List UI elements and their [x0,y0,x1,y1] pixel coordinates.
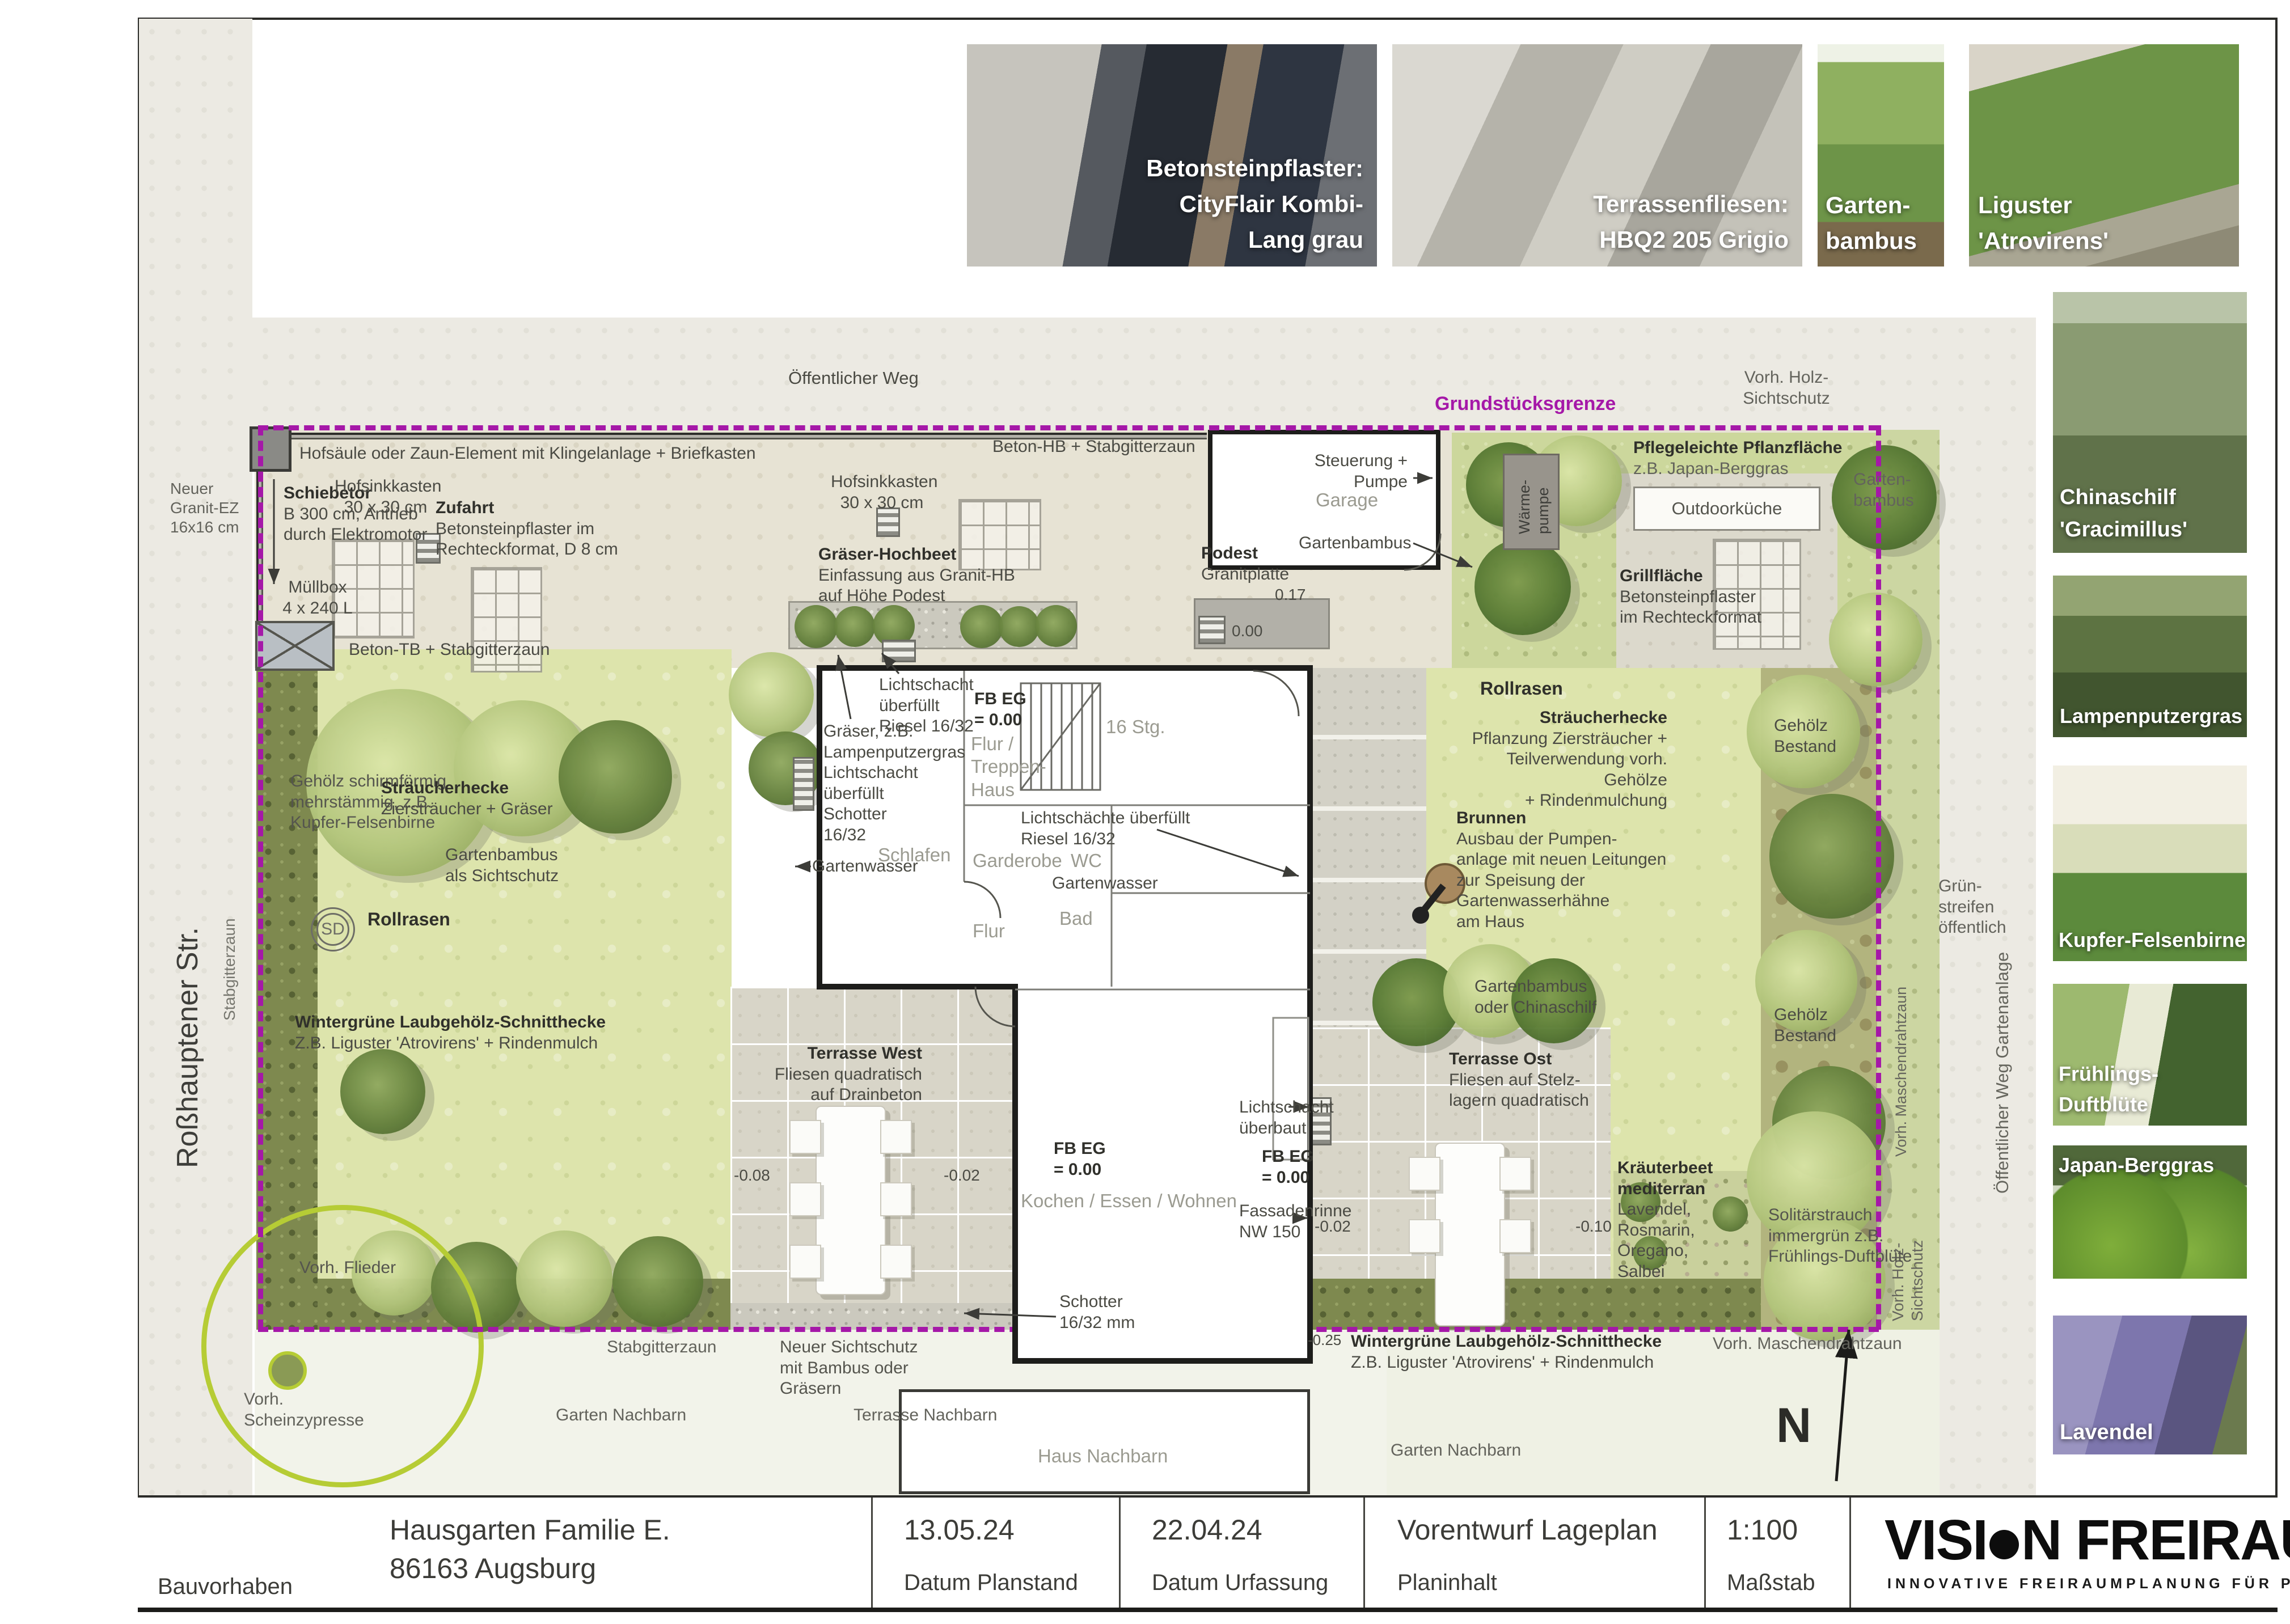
label-lichtschaechte: Lichtschächte überfüllt Riesel 16/32 [1021,808,1190,849]
photo-lavendel: Lavendel [2053,1316,2247,1454]
label-gartenwasser-ost: Gartenwasser [1052,873,1158,894]
photo-caption: Betonsteinpflaster: CityFlair Kombi- Lan… [1146,150,1363,257]
bauvorhaben-label: Bauvorhaben [158,1574,293,1600]
boundary-west [258,425,263,1330]
label-wintergruen-bottom: Wintergrüne Laubgehölz-SchnittheckeZ.B. … [1351,1331,1662,1373]
tree-symbol [612,1236,703,1327]
label-schlafen: Schlafen [878,844,950,866]
label-waermepumpe: Wärme- pumpe [1515,460,1553,534]
titleblock-divider [1849,1498,1851,1608]
terrace-chair [789,1120,821,1154]
titleblock-divider [1119,1498,1121,1608]
tree-symbol [340,1049,425,1134]
label-017: 0.17 [1275,585,1306,604]
label-gartenbambus-chinaschilf: Gartenbambus oder Chinaschilf [1474,976,1596,1018]
label-fbeg-stairs: FB EG = 0.00 [974,689,1026,730]
label-neuer-sichtschutz: Neuer Sichtschutz mit Bambus oder Gräser… [780,1337,918,1399]
label-gartenbambus-garage: Gartenbambus [1299,533,1410,554]
label-brunnen: BrunnenAusbau der Pumpen- anlage mit neu… [1456,808,1666,933]
herb-symbol [1713,1196,1748,1232]
compass-n: N [1776,1396,1811,1456]
terrace-chair [789,1245,821,1279]
label-beton-hb: Beton-HB + Stabgitterzaun [992,437,1195,458]
label-podest: PodestGranitplatte [1201,543,1289,585]
label-hecke-left: SträucherheckeZiersträucher + Gräser [381,778,553,819]
label-000: 0.00 [1232,621,1263,641]
planstand-label: Datum Planstand [904,1570,1078,1596]
photo-caption: Terrassenfliesen: HBQ2 205 Grigio [1593,186,1789,257]
lichtschacht-icon [882,640,916,662]
planinhalt-label: Planinhalt [1397,1570,1497,1596]
label-schotter-mm: Schotter 16/32 mm [1059,1292,1135,1333]
label-flur-treppenhaus: Flur / Treppen- Haus [971,733,1046,801]
label-hofsinkkasten-1: Hofsinkkasten 30 x 30 cm [335,476,437,518]
photo-caption: Liguster 'Atrovirens' [1978,187,2109,259]
label-graeser-hochbeet: Gräser-HochbeetEinfassung aus Granit-HB … [818,544,1015,607]
label-stabgitterzaun-left: Stabgitterzaun [220,783,239,1021]
terrace-chair [1499,1157,1531,1191]
label-grillflaeche: GrillflächeBetonsteinpflaster im Rechtec… [1620,566,1761,628]
gravel-strip-south [730,1303,1015,1330]
label-fbeg-west: FB EG = 0.00 [1054,1139,1106,1180]
terrace-chair [880,1182,912,1216]
label-gartenbambus-right: Garten- bambus [1853,470,1914,511]
photo-japan-berggras: Japan-Berggras [2053,1145,2247,1279]
logo-tagline: INNOVATIVE FREIRAUMPLANUNG FÜR PRIVAT & … [1887,1576,2290,1592]
terrace-chair [880,1120,912,1154]
label-stabgitterzaun-bottom: Stabgitterzaun [607,1337,716,1358]
photo-gartenbambus: Garten- bambus [1818,44,1944,267]
entry-steps-icon [1198,616,1226,644]
label-lichtschacht-ueberbaut: Lichtschacht überbaut [1239,1097,1334,1139]
lichtschacht-icon [793,757,814,811]
titleblock-divider [1704,1498,1706,1608]
label-gehoelz-bestand-1: Gehölz Bestand [1774,716,1836,757]
planinhalt-value: Vorentwurf Lageplan [1397,1513,1658,1546]
label-terrasse-nachbarn: Terrasse Nachbarn [854,1405,997,1426]
label-wintergruen-left: Wintergrüne Laubgehölz-SchnittheckeZ.B. … [295,1012,606,1054]
project-line2: 86163 Augsburg [390,1552,596,1585]
graeser-hochbeet-band [788,601,1078,649]
muellbox-icon [255,621,335,671]
photo-caption: Chinaschilf 'Gracimillus' [2060,481,2187,546]
photo-caption: Japan-Berggras [2059,1150,2214,1181]
label-rollrasen-left: Rollrasen [367,908,450,931]
boundary-east [1876,425,1881,1330]
label-solitaerstrauch: Solitärstrauch immergrün z.B. Frühlings-… [1768,1205,1912,1267]
label-beton-tb: Beton-TB + Stabgitterzaun [349,640,550,661]
label-garten-nachbarn-right: Garten Nachbarn [1391,1440,1521,1461]
massstab-value: 1:100 [1727,1513,1798,1546]
plant-symbol [960,605,1003,648]
tree-symbol [729,652,814,737]
hedge-south-east [1311,1279,1761,1330]
label-grundstuecksgrenze: Grundstücksgrenze [1435,392,1616,416]
label-16stg: 16 Stg. [1106,716,1165,738]
plant-symbol [795,605,838,648]
label-kochen-essen-wohnen: Kochen / Essen / Wohnen [1021,1190,1237,1212]
label-granit: Neuer Granit-EZ 16x16 cm [170,479,239,537]
urfassung-label: Datum Urfassung [1152,1570,1328,1596]
label-scheinzypresse: Vorh. Scheinzypresse [244,1389,364,1431]
photo-liguster: Liguster 'Atrovirens' [1969,44,2239,267]
label-gartenbambus-sicht: Gartenbambus als Sichtschutz [445,845,559,886]
label-fbeg-ost: FB EG = 0.00 [1262,1147,1314,1188]
plan-sheet: Betonsteinpflaster: CityFlair Kombi- Lan… [0,0,2290,1624]
title-block: Bauvorhaben Hausgarten Familie E. 86163 … [138,1495,2278,1612]
terrace-chair [789,1182,821,1216]
label-maschendraht-bottom: Vorh. Maschendrahtzaun [1713,1334,1902,1355]
urfassung-date: 22.04.24 [1152,1513,1262,1546]
label-hofsaeule: Hofsäule oder Zaun-Element mit Klingelan… [299,443,756,464]
photo-chinaschilf: Chinaschilf 'Gracimillus' [2053,292,2247,553]
photo-lampenputzergras: Lampenputzergras [2053,576,2247,737]
scheinzypresse-ring [201,1205,484,1487]
label-maschendraht-vert: Vorh. Maschendrahtzaun [1892,913,1911,1157]
plant-symbol [999,606,1040,647]
label-graeser-lampen: Gräser, z.B. Lampenputzergras [823,721,965,763]
label-hofsinkkasten-2: Hofsinkkasten 30 x 30 cm [831,472,933,513]
label-m008: -0.08 [734,1166,770,1185]
label-outdoorkueche: Outdoorküche [1633,498,1820,519]
label-lichtschacht-schotter: Lichtschacht überfüllt Schotter 16/32 [823,763,918,845]
massstab-label: Maßstab [1727,1570,1815,1596]
label-zufahrt: ZufahrtBetonsteinpflaster im Rechteckfor… [436,498,618,560]
titleblock-divider [1363,1498,1365,1608]
plant-symbol [834,606,875,647]
terrace-table [1435,1143,1505,1326]
scheinzypresse-trunk [268,1351,307,1390]
project-line1: Hausgarten Familie E. [390,1513,670,1546]
label-garten-nachbarn-left: Garten Nachbarn [556,1405,686,1426]
label-steuerung: Steuerung + Pumpe [1310,451,1408,492]
photo-kupfer-felsenbirne: Kupfer-Felsenbirne [2053,766,2247,961]
photo-fruehlings-duftbluete: Frühlings-Duftblüte [2053,984,2247,1126]
label-oeffentlicher-weg: Öffentlicher Weg [788,367,919,389]
label-wc: WC [1071,849,1102,872]
label-gehoelz-bestand-2: Gehölz Bestand [1774,1005,1836,1046]
tree-symbol [516,1230,612,1327]
label-m002-ost: -0.02 [1315,1217,1351,1236]
label-kraeuterbeet: Kräuterbeet mediterranLavendel, Rosmarin… [1617,1158,1713,1283]
plant-symbol [1035,605,1077,647]
boundary-north [258,425,1879,430]
gartenbambus-tree [1474,539,1571,635]
label-garderobe: Garderobe [973,849,1062,872]
tree-symbol [559,720,672,834]
label-hecke-right: SträucherheckePflanzung Ziersträucher + … [1449,708,1667,811]
planstand-date: 13.05.24 [904,1513,1015,1546]
hofsaeule-icon [250,426,291,472]
terrace-chair [1409,1157,1440,1191]
photo-betonsteinpflaster: Betonsteinpflaster: CityFlair Kombi- Lan… [967,44,1377,267]
label-m025: -0.25 [1308,1331,1341,1350]
tree-symbol [1769,794,1894,919]
logo-dot-icon [1989,1530,2019,1559]
label-muellbox: Müllbox 4 x 240 L [272,577,363,619]
terrace-chair [1499,1219,1531,1253]
photo-caption: Frühlings-Duftblüte [2059,1059,2247,1120]
sd-marker: SD [311,907,355,951]
photo-caption: Garten- bambus [1826,187,1917,259]
titleblock-divider [871,1498,873,1608]
label-pflegeleicht: Pflegeleichte Pflanzflächez.B. Japan-Ber… [1633,438,1842,479]
label-haus-nachbarn: Haus Nachbarn [1038,1445,1168,1467]
photo-caption: Lavendel [2060,1416,2153,1449]
label-rollrasen-right: Rollrasen [1480,678,1563,700]
label-m010: -0.10 [1575,1217,1612,1236]
label-terrasse-west: Terrasse WestFliesen quadratisch auf Dra… [754,1043,922,1106]
label-vorh-holz-top: Vorh. Holz- Sichtschutz [1713,367,1860,409]
label-terrasse-ost: Terrasse OstFliesen auf Stelz- lagern qu… [1449,1049,1589,1111]
label-street: Roßhauptener Str. [170,737,206,1168]
label-flur: Flur [973,920,1005,942]
photo-caption: Kupfer-Felsenbirne [2059,925,2246,955]
label-vorh-flieder: Vorh. Flieder [299,1258,396,1279]
vision-freiraum-logo: VISIN FREIRAUM [1885,1508,2290,1573]
label-bad: Bad [1059,907,1093,930]
photo-terrassenfliesen: Terrassenfliesen: HBQ2 205 Grigio [1392,44,1802,267]
terrace-chair [1409,1219,1440,1253]
photo-caption: Lampenputzergras [2060,701,2242,731]
label-weg-gartenanlage: Öffentlicher Weg Gartenanlage [1992,706,2013,1194]
public-garden-way [1940,430,2036,1495]
label-m002-west: -0.02 [944,1166,980,1185]
terrace-table [816,1106,886,1295]
terrace-chair [880,1245,912,1279]
